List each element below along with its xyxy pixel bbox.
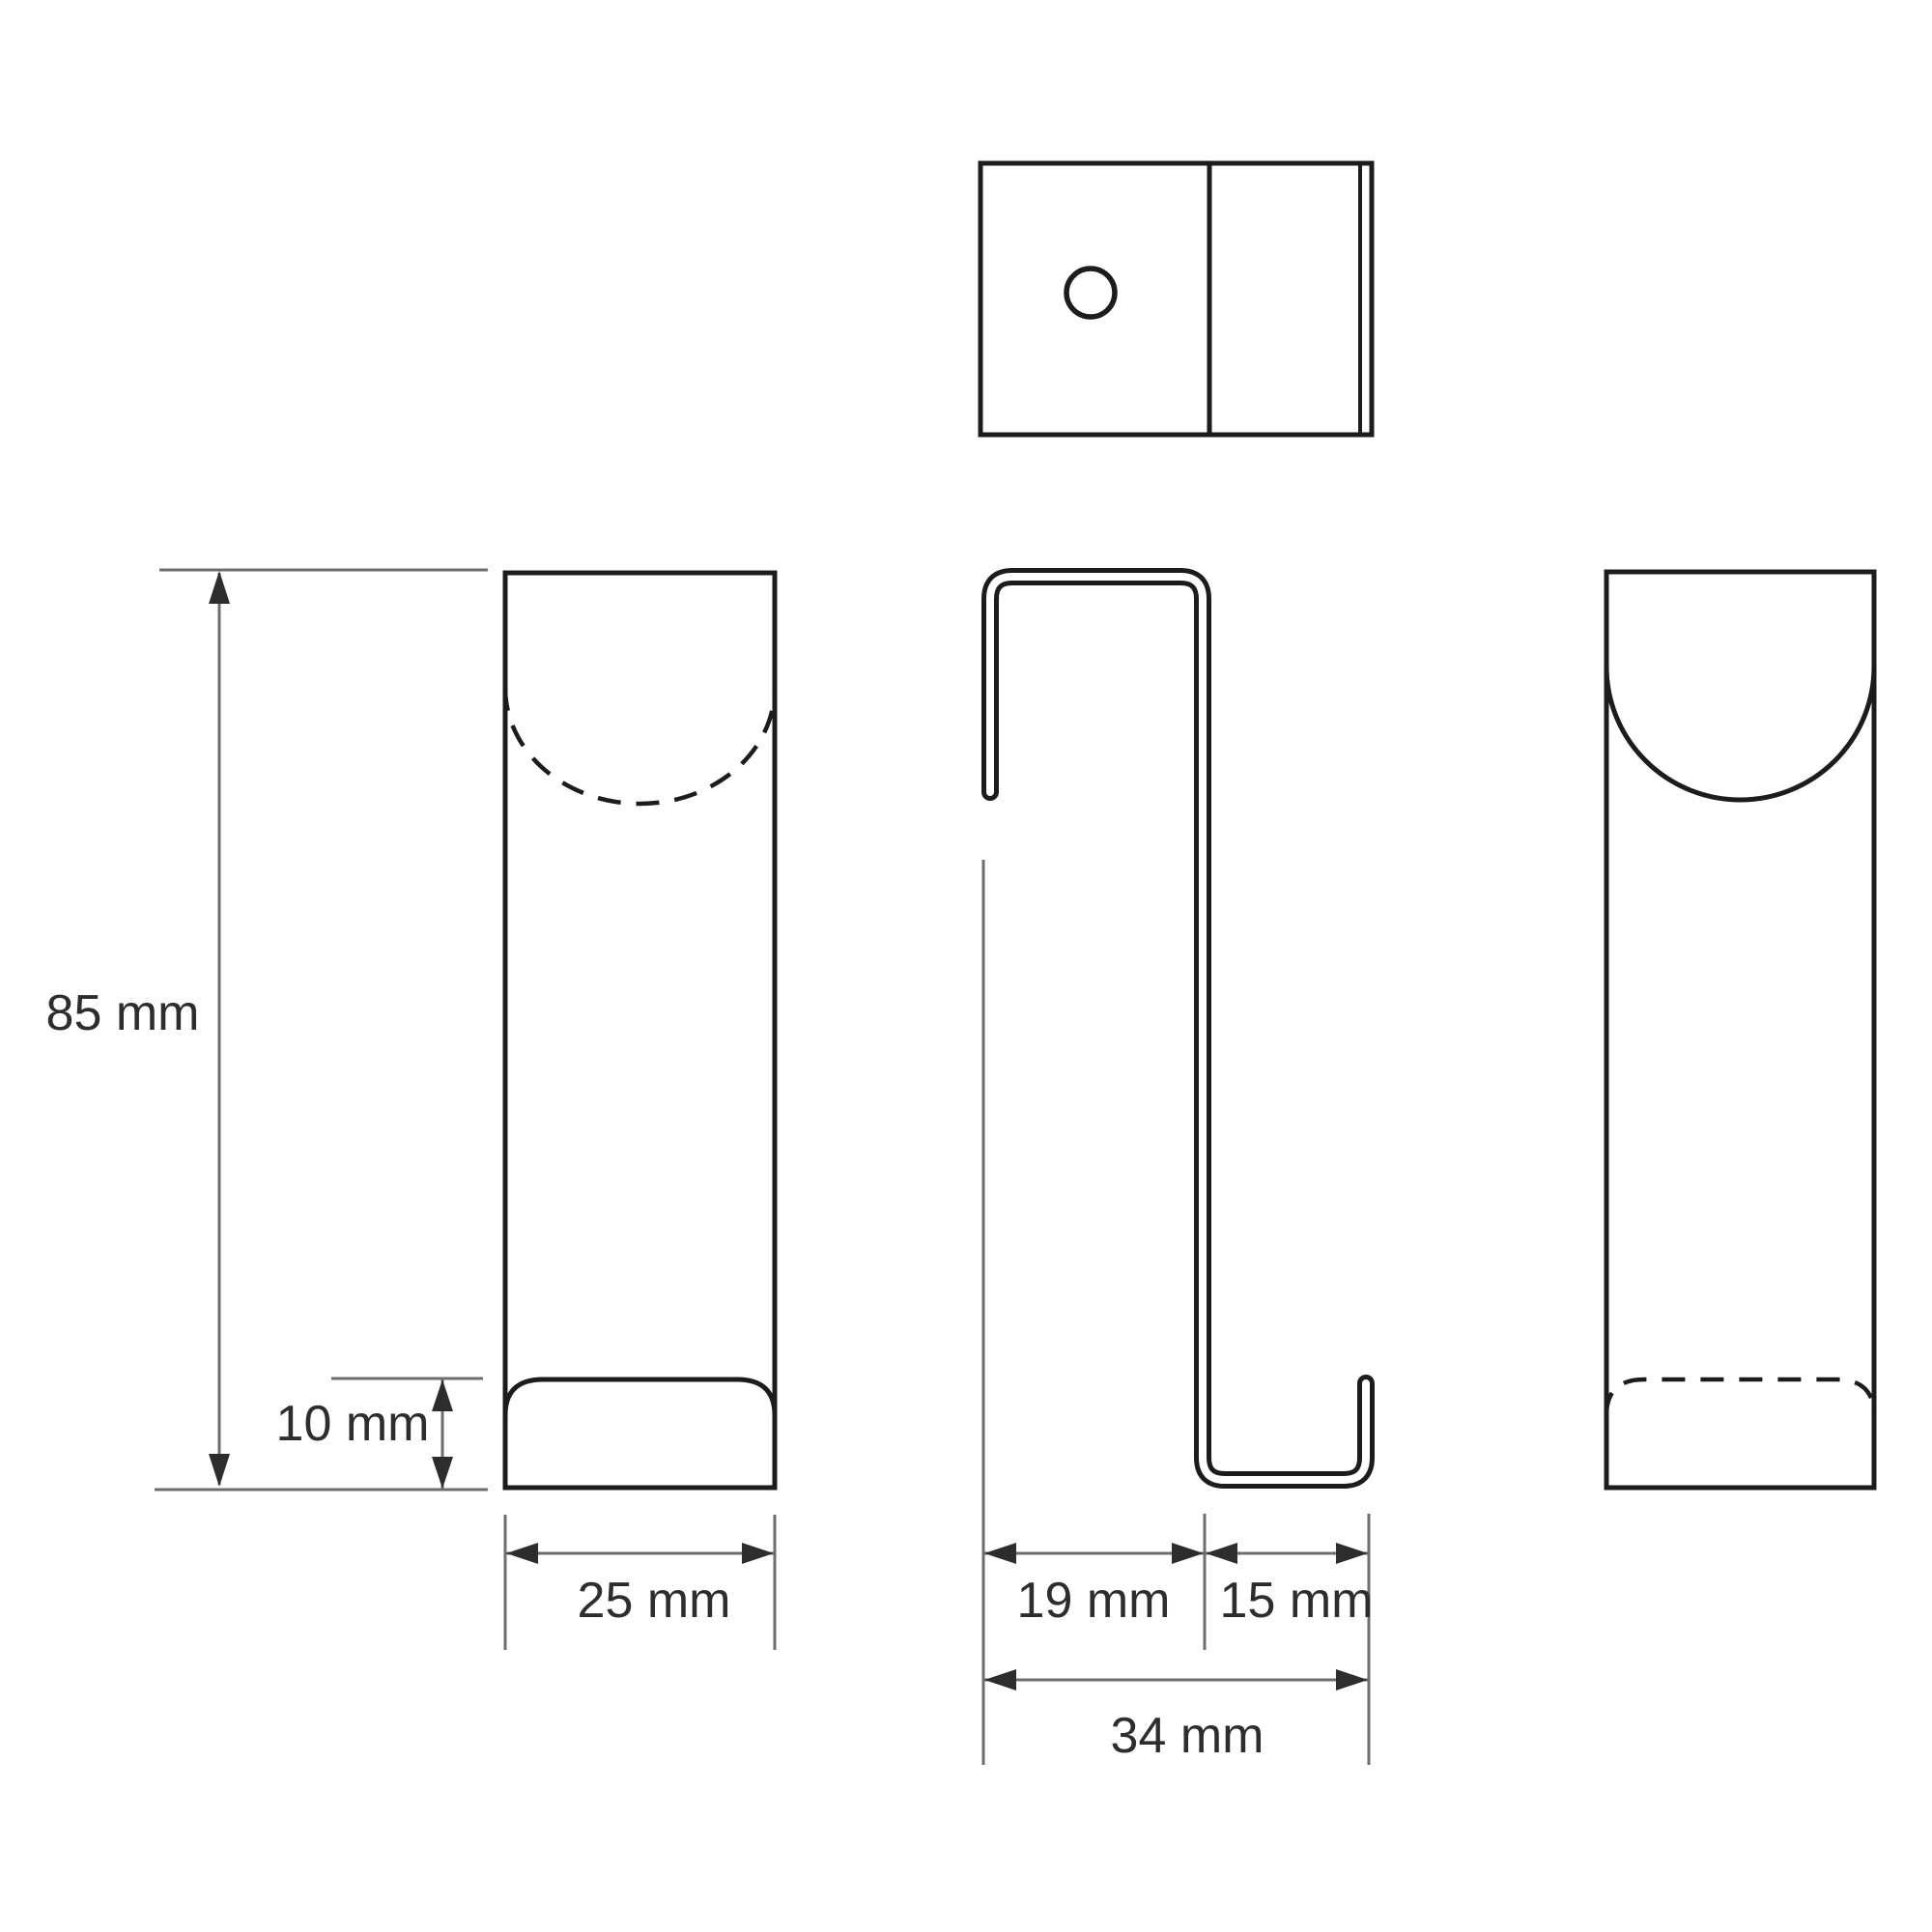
front-view-hidden-cutout-arc [505,688,775,804]
front-view-lip-line [505,1379,775,1415]
arrow-total-depth-left [984,1669,1016,1690]
technical-drawing-canvas: 85 mm 10 mm 25 mm 19 mm 15 mm 34 mm [0,0,1932,1932]
label-height: 85 mm [46,985,200,1041]
back-view-hidden-lip-line [1606,1379,1874,1415]
arrow-door-depth-right [1172,1543,1204,1564]
label-lip: 10 mm [276,1396,430,1452]
label-door-depth: 19 mm [1017,1573,1171,1629]
dimension-lines [155,570,1369,1765]
label-hook-depth: 15 mm [1220,1573,1374,1629]
back-view-outline [1606,572,1874,1488]
arrow-lip-up [432,1379,453,1411]
front-view-outline [505,573,775,1488]
arrow-total-depth-right [1336,1669,1368,1690]
arrow-width-right [742,1543,774,1564]
arrow-height-down [209,1454,230,1487]
top-view-outline [980,163,1372,435]
arrow-hook-depth-right [1336,1543,1368,1564]
top-view-hole [1066,269,1115,317]
arrow-width-left [506,1543,538,1564]
label-total-depth: 34 mm [1111,1708,1264,1764]
arrow-hook-depth-left [1206,1543,1237,1564]
arrow-height-up [209,571,230,604]
label-width: 25 mm [578,1573,731,1629]
dimension-labels: 85 mm 10 mm 25 mm 19 mm 15 mm 34 mm [46,985,1374,1764]
side-view-profile-inner [990,577,1366,1480]
back-view-cutout-arc [1606,667,1874,800]
arrow-lip-down [432,1457,453,1489]
part-outlines [505,163,1874,1488]
arrow-door-depth-left [984,1543,1016,1564]
drawing-svg: 85 mm 10 mm 25 mm 19 mm 15 mm 34 mm [0,0,1932,1932]
side-view-profile-outer [990,577,1366,1480]
